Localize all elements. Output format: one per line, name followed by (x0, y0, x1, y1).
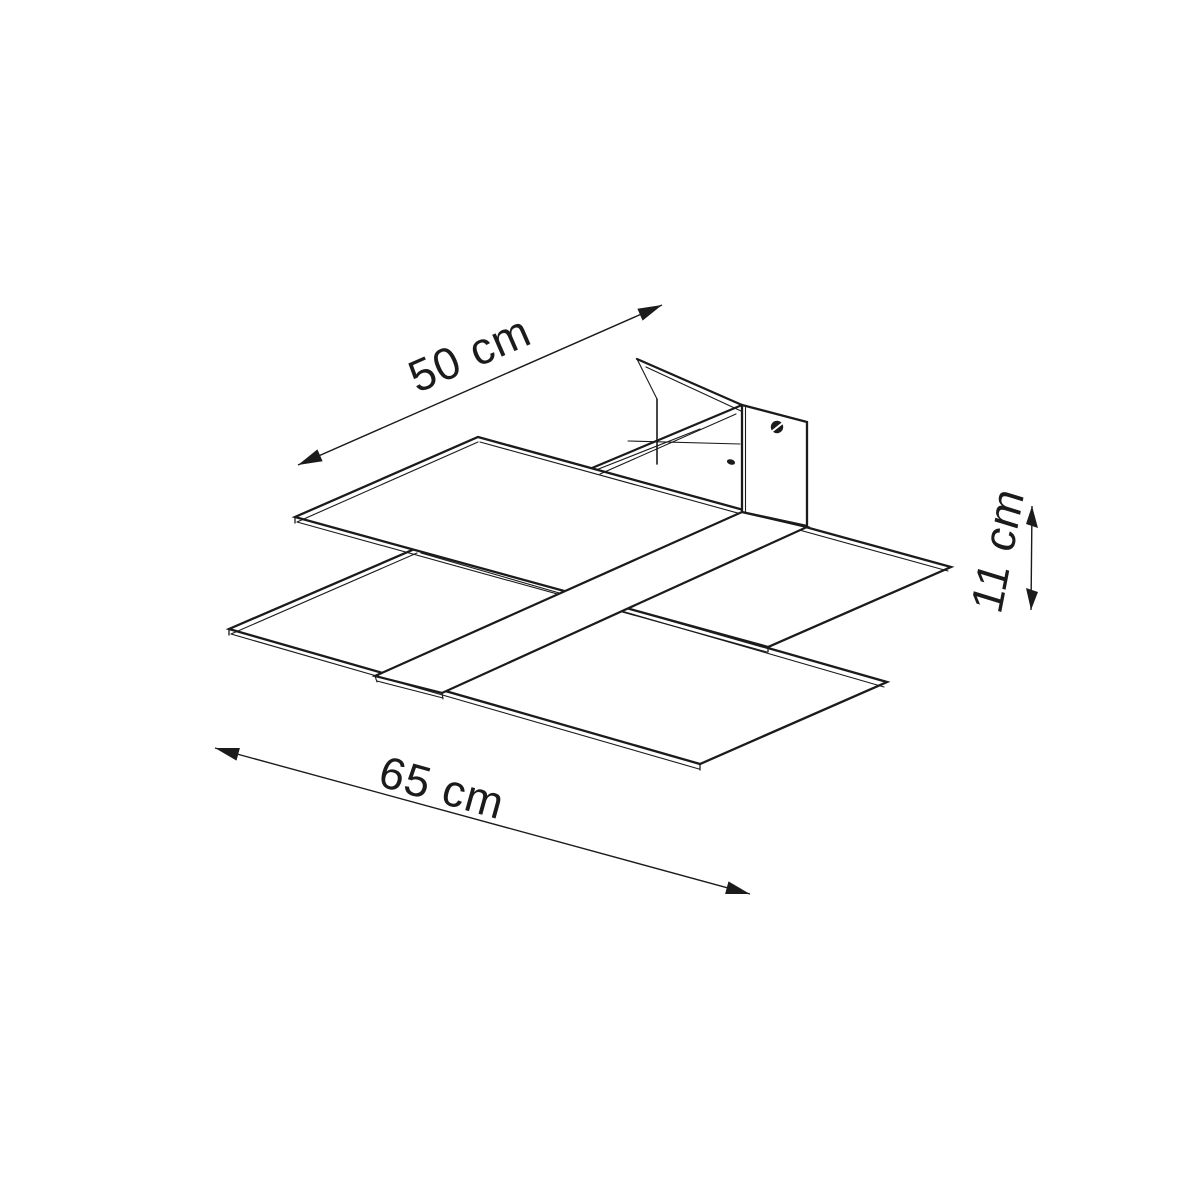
arrowhead-icon (637, 305, 662, 321)
dimension-depth-label: 50 cm (401, 305, 538, 403)
dimension-height-label: 11 cm (961, 482, 1034, 619)
screw-head-icon (771, 421, 783, 433)
screw-hole-icon (726, 458, 736, 466)
arrowhead-icon (215, 748, 240, 761)
arrowhead-icon (298, 449, 323, 465)
arrowhead-icon (725, 881, 750, 894)
drawing-canvas: 50 cm 65 cm 11 cm (0, 0, 1200, 1200)
dimension-width: 65 cm (215, 746, 750, 894)
dimension-height: 11 cm (961, 482, 1038, 619)
ceiling-lamp-dimension-drawing: 50 cm 65 cm 11 cm (0, 0, 1200, 1200)
arrowhead-icon (1026, 588, 1038, 610)
dimension-width-label: 65 cm (374, 746, 511, 829)
